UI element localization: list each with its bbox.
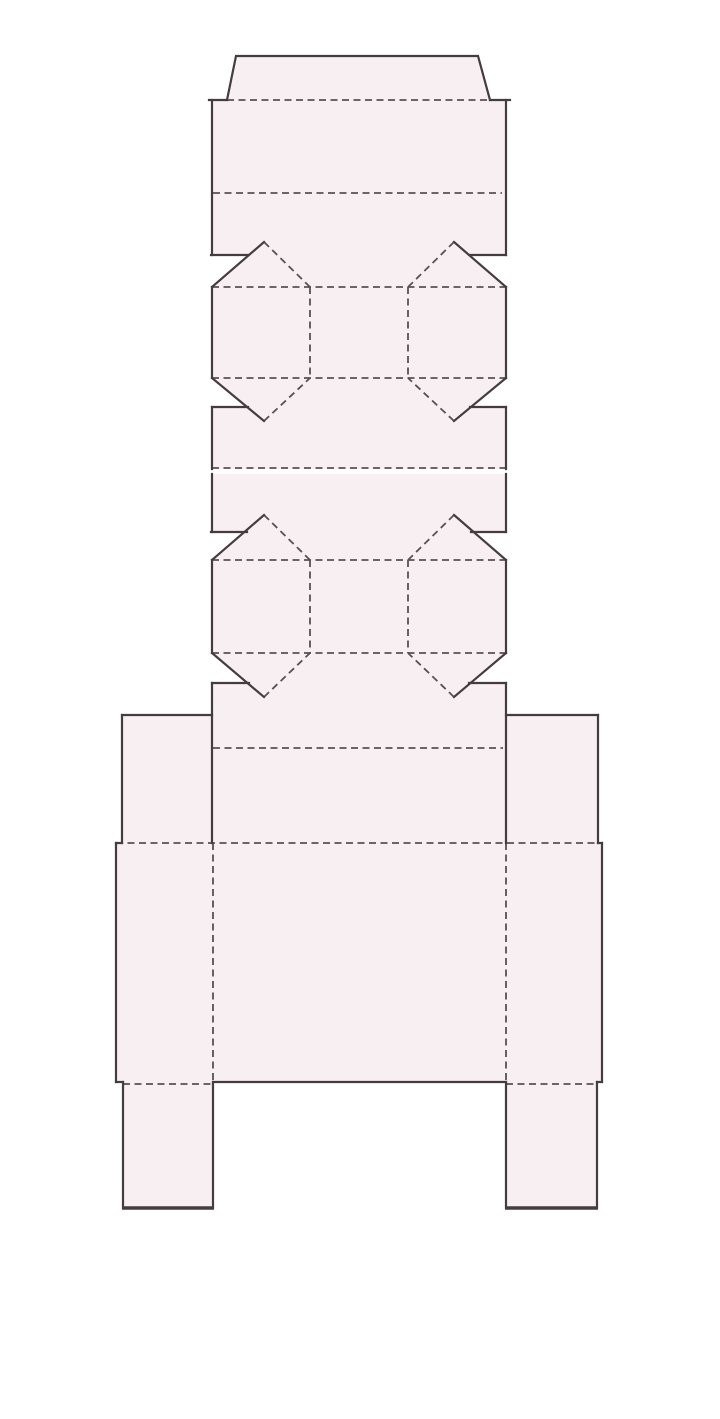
upper-lock-mid (212, 287, 506, 378)
top-panel (212, 100, 506, 255)
side-flap-right (506, 715, 598, 843)
piece-separation-gap (213, 470, 505, 474)
bottom-tab-left (123, 1082, 213, 1208)
board-panel-fills (116, 56, 602, 1208)
front-panel (212, 683, 506, 843)
main-body-panel (116, 843, 602, 1082)
side-flap-left (122, 715, 212, 843)
bottom-tab-right (506, 1082, 597, 1208)
piece-separation-gaps (213, 470, 505, 474)
upper-band (212, 407, 506, 469)
lower-lock-mid (212, 560, 506, 653)
carton-dieline-diagram (0, 0, 720, 1419)
scanned-dieline-page (0, 0, 720, 1419)
glue-tab (227, 56, 490, 100)
